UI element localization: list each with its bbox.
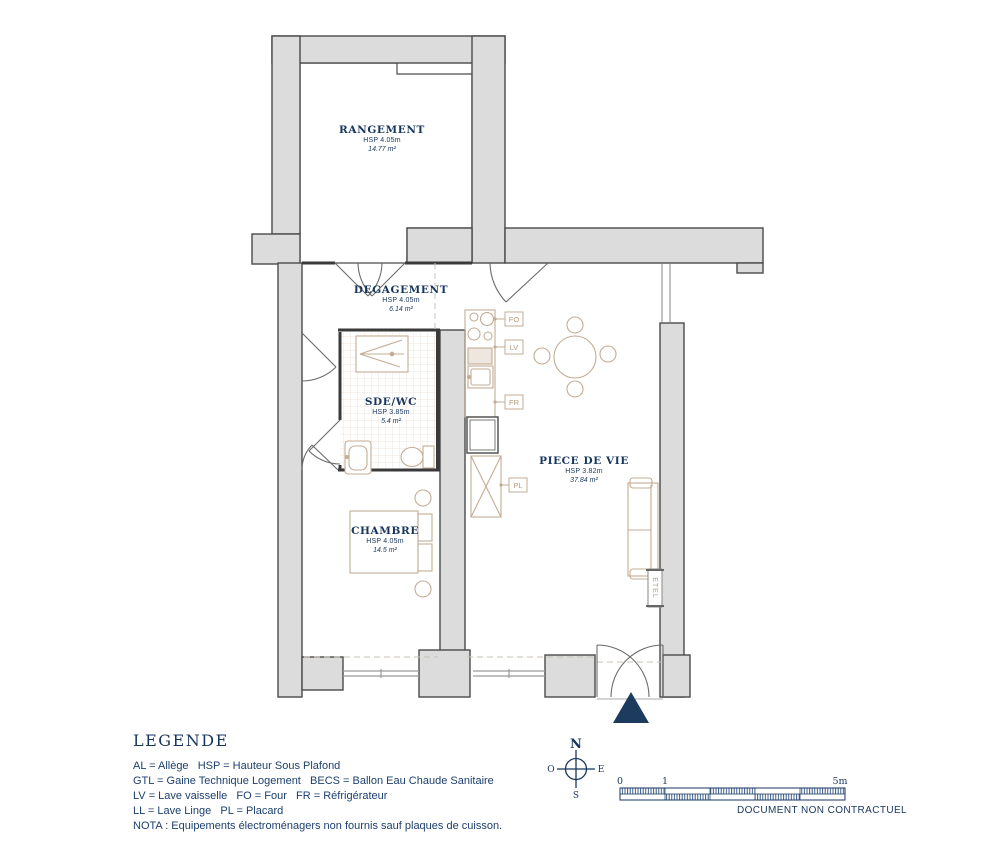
- legend-line: LL = Lave Linge PL = Placard: [133, 804, 502, 819]
- sofa-cushions: [628, 485, 651, 574]
- entrance-triangle: [613, 692, 649, 723]
- wall-pdv-east: [660, 323, 684, 697]
- tag-pl: PL: [499, 478, 527, 492]
- tag-pl-dot: [499, 483, 502, 486]
- entry-door-right: [611, 645, 663, 697]
- kitchen: [465, 310, 501, 517]
- tag-fo-label: FO: [509, 315, 520, 324]
- chair-top: [567, 317, 583, 333]
- scale-label-5m: 5m: [832, 776, 847, 787]
- sink-bowl: [471, 369, 490, 385]
- disclaimer-text: DOCUMENT NON CONTRACTUEL: [737, 805, 907, 816]
- tag-fr-label: FR: [509, 398, 520, 407]
- dishwasher: [468, 348, 492, 364]
- chair-bottom: [567, 381, 583, 397]
- nightstand-1: [415, 490, 431, 506]
- scale-seg-1: [620, 788, 665, 794]
- compass-west: O: [547, 765, 554, 775]
- tag-pl-label: PL: [513, 481, 522, 490]
- compass-north: N: [570, 737, 582, 752]
- compass-south: S: [573, 791, 579, 801]
- appliance-tags: FO LV FR PL: [493, 312, 527, 492]
- tag-fr-dot: [493, 400, 496, 403]
- chair-left: [534, 348, 550, 364]
- bed: [350, 511, 418, 573]
- shower-drain: [390, 352, 394, 356]
- toilet-bowl: [401, 448, 423, 467]
- scale-seg-5: [800, 788, 845, 794]
- scale-seg-4: [755, 794, 800, 800]
- washbasin-tap: [346, 456, 349, 459]
- compass-east: E: [598, 765, 605, 775]
- wall-rangement-right: [472, 36, 505, 263]
- compass-rose: N S O E: [547, 737, 604, 801]
- floor-plan-drawing: FO LV FR PL: [0, 0, 1000, 857]
- nightstand-2: [415, 581, 431, 597]
- pillow-1: [418, 514, 432, 541]
- wall-stub: [407, 228, 472, 263]
- tag-lv-dot: [493, 345, 496, 348]
- tag-fo: FO: [493, 312, 523, 326]
- radiator: ETEL: [646, 569, 664, 607]
- wall-left-main: [278, 263, 302, 697]
- wall-chambre-pdv: [440, 330, 465, 665]
- wall-band-step: [737, 263, 763, 273]
- scale-bar: 0 1 5m: [617, 776, 848, 800]
- burner-2: [481, 313, 494, 326]
- scale-seg-3: [710, 788, 755, 794]
- entry-door-left: [597, 645, 649, 697]
- scale-label-1: 1: [662, 776, 668, 787]
- wall-left-ledge: [252, 234, 300, 264]
- wall-top-right-band: [505, 228, 763, 263]
- legend: LEGENDE AL = Allège HSP = Hauteur Sous P…: [133, 731, 502, 834]
- door-chambre: [302, 445, 338, 470]
- dining-table: [554, 336, 596, 378]
- tag-lv: LV: [493, 340, 523, 354]
- window-chambre: [343, 669, 419, 678]
- tag-fr: FR: [493, 395, 523, 409]
- legend-line: LV = Lave vaisselle FO = Four FR = Réfri…: [133, 789, 502, 804]
- scale-label-0: 0: [617, 776, 623, 787]
- toilet-tank: [423, 446, 434, 468]
- radiator-label: ETEL: [651, 577, 658, 599]
- sink-tap: [468, 376, 471, 379]
- chair-right: [600, 346, 616, 362]
- wall-left-upper: [272, 36, 300, 234]
- wall-pier-1: [302, 657, 343, 690]
- compass-cross: [557, 750, 595, 788]
- window-east: [662, 264, 670, 322]
- wall-pier-3: [545, 655, 595, 697]
- legend-line: NOTA : Equipements électroménagers non f…: [133, 819, 502, 834]
- door-degagement-corridor: [302, 333, 336, 381]
- tag-fo-dot: [493, 317, 496, 320]
- burner-3: [468, 328, 480, 340]
- scale-seg-2: [665, 794, 710, 800]
- burner-4: [484, 332, 492, 340]
- wall-top: [272, 36, 505, 63]
- legend-line: GTL = Gaine Technique Logement BECS = Ba…: [133, 774, 502, 789]
- closet-cross: [471, 456, 501, 517]
- wall-corner-foot: [663, 655, 690, 697]
- burner-1: [470, 313, 478, 321]
- door-degagement-pdv: [490, 263, 548, 302]
- legend-title: LEGENDE: [133, 731, 502, 750]
- pillow-2: [418, 544, 432, 571]
- floor-plan-page: FO LV FR PL: [0, 0, 1000, 857]
- tag-lv-label: LV: [510, 343, 519, 352]
- window-pdv: [473, 669, 545, 678]
- duct-box: [467, 417, 498, 453]
- legend-line: AL = Allège HSP = Hauteur Sous Plafond: [133, 759, 502, 774]
